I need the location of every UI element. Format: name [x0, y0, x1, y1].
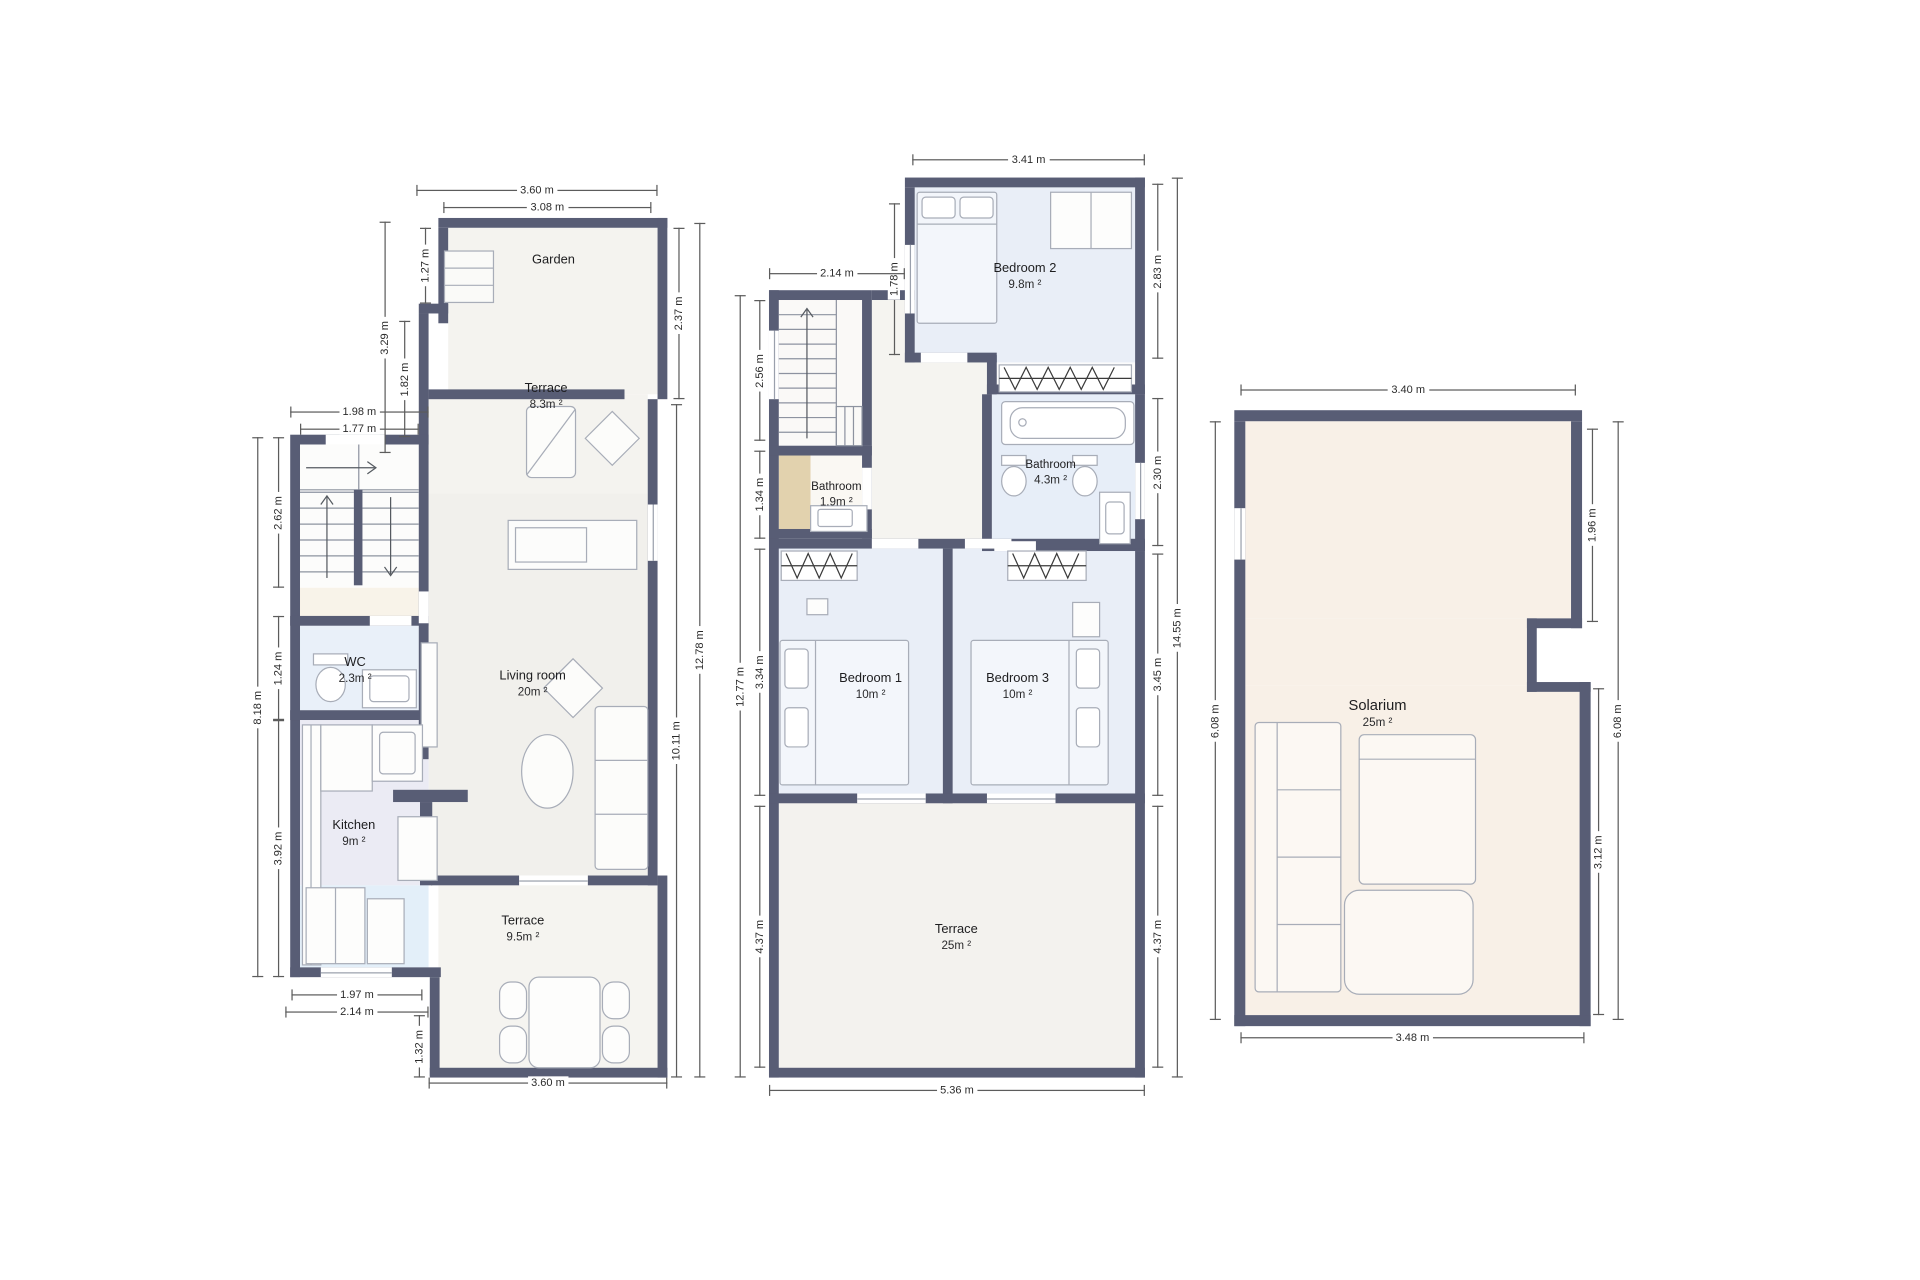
- dim-terrace-right-first: 4.37 m: [1150, 806, 1166, 1068]
- dim-stairs-left-first: 2.56 m: [752, 300, 768, 441]
- dim-stairs-top-first: 2.14 m: [769, 266, 905, 282]
- room-area: 1.9m ²: [820, 495, 853, 510]
- room-area: 10m ²: [856, 688, 886, 703]
- dim-solarium-bottom: 3.48 m: [1240, 1030, 1584, 1046]
- ottoman: [1345, 890, 1474, 994]
- room-name: Bedroom 1: [839, 671, 902, 688]
- room-area: 4.3m ²: [1034, 473, 1067, 488]
- dim-bathroom-right: 2.30 m: [1150, 398, 1166, 546]
- room-name: Garden: [532, 252, 575, 269]
- dim-bottom-step: 1.32 m: [411, 1015, 427, 1077]
- staircase-first: [779, 300, 862, 446]
- room-area: 9.8m ²: [1008, 278, 1041, 293]
- closet-bedroom2: [1051, 192, 1132, 248]
- sofa: [595, 707, 648, 870]
- dim-right-total: 12.78 m: [692, 223, 708, 1078]
- bath-vanity: [1100, 492, 1131, 543]
- floorplan-canvas: Garden Terrace8.3m ² Living room20m ² WC…: [0, 0, 1920, 1280]
- wardrobe-bedroom3: [1008, 551, 1086, 580]
- bathtub: [1002, 402, 1134, 445]
- laundry-appliances: [306, 888, 404, 964]
- room-label-terrace-lower: Terrace9.5m ²: [462, 913, 584, 945]
- room-label-solarium: Solarium25m ²: [1316, 697, 1438, 732]
- dim-left-total-first: 12.77 m: [732, 295, 748, 1077]
- dim-bottom-inner: 2.14 m: [285, 1004, 428, 1020]
- dim-left-total: 8.18 m: [250, 437, 266, 977]
- oval-table: [522, 735, 573, 808]
- room-label-terrace-first: Terrace25m ²: [895, 922, 1017, 954]
- room-label-kitchen: Kitchen9m ²: [293, 818, 415, 850]
- room-name: Living room: [499, 669, 565, 686]
- planters: [444, 251, 493, 302]
- dim-bedroom2-top: 3.41 m: [912, 152, 1145, 168]
- room-name: Terrace: [525, 381, 568, 398]
- room-name: Terrace: [935, 922, 978, 939]
- room-label-bedroom1: Bedroom 110m ²: [809, 671, 931, 703]
- staircase-ground: [300, 444, 419, 585]
- dim-garden-right: 2.37 m: [671, 228, 687, 399]
- lounge-chair: [527, 407, 640, 478]
- dim-garden-left: 1.27 m: [418, 228, 434, 304]
- dim-bedroom2-right: 2.83 m: [1150, 184, 1166, 359]
- room-label-garden: Garden: [492, 252, 614, 269]
- room-label-bedroom3: Bedroom 310m ²: [956, 671, 1078, 703]
- wardrobe-bedroom2: [999, 365, 1131, 392]
- room-name: Solarium: [1349, 697, 1407, 716]
- room-area: 20m ²: [518, 686, 548, 701]
- dim-stairs-height: 2.62 m: [271, 437, 287, 588]
- room-area: 9m ²: [342, 835, 365, 850]
- dim-solarium-right-lower: 3.12 m: [1591, 688, 1607, 1015]
- dining-table: [500, 977, 630, 1068]
- room-name: Kitchen: [332, 818, 375, 835]
- dim-bedroom1-left: 3.34 m: [752, 549, 768, 796]
- room-label-bathroom-small: Bathroom1.9m ²: [775, 480, 897, 511]
- tv-sideboard: [508, 520, 637, 569]
- dim-top-outer: 3.60 m: [416, 182, 657, 198]
- room-area: 25m ²: [1363, 716, 1393, 731]
- dim-bathroom-small-left: 1.34 m: [752, 451, 768, 539]
- room-label-bathroom: Bathroom4.3m ²: [989, 458, 1111, 489]
- sun-lounger: [1359, 735, 1475, 884]
- room-label-wc: WC2.3m ²: [294, 655, 416, 687]
- room-name: Bathroom: [1025, 458, 1075, 473]
- dim-bottom-door: 1.97 m: [291, 987, 422, 1003]
- dim-top-inner: 3.08 m: [443, 200, 651, 216]
- dim-terrace-left-first: 4.37 m: [752, 806, 768, 1068]
- dim-solarium-right-upper: 1.96 m: [1585, 429, 1601, 622]
- wardrobe-bedroom1: [781, 551, 857, 580]
- dim-right-total-first: 14.55 m: [1169, 178, 1185, 1078]
- dim-solarium-right-total: 6.08 m: [1610, 421, 1626, 1020]
- floorplan-screenshot: { "colors": { "wall": "#585d75", "floor_…: [0, 0, 1920, 1280]
- room-area: 10m ²: [1003, 688, 1033, 703]
- dim-right-inner: 10.11 m: [669, 404, 685, 1077]
- dim-terrace-bottom: 3.60 m: [429, 1075, 668, 1091]
- room-label-terrace-upper: Terrace8.3m ²: [485, 381, 607, 413]
- dim-stairs-width-outer: 1.98 m: [290, 404, 428, 420]
- dim-kitchen-height: 3.92 m: [271, 720, 287, 977]
- room-name: Bathroom: [811, 480, 861, 495]
- solarium-sofa: [1255, 722, 1341, 991]
- room-area: 2.3m ²: [339, 672, 372, 687]
- room-area: 8.3m ²: [530, 398, 563, 413]
- room-name: WC: [344, 655, 365, 672]
- room-name: Terrace: [501, 913, 544, 930]
- dim-wc-height: 1.24 m: [271, 616, 287, 720]
- dim-stairs-width-inner: 1.77 m: [300, 421, 419, 437]
- room-label-living-room: Living room20m ²: [471, 669, 593, 701]
- room-name: Bedroom 3: [986, 671, 1049, 688]
- sideboard: [421, 643, 437, 747]
- room-name: Bedroom 2: [993, 261, 1056, 278]
- dim-solarium-top: 3.40 m: [1240, 382, 1576, 398]
- dim-bottom-first: 5.36 m: [769, 1082, 1145, 1098]
- dim-bedroom3-right: 3.45 m: [1150, 553, 1166, 795]
- double-bed-2: [917, 192, 997, 323]
- dim-solarium-left: 6.08 m: [1207, 421, 1223, 1020]
- room-area: 25m ²: [941, 939, 971, 954]
- room-label-bedroom2: Bedroom 29.8m ²: [964, 261, 1086, 293]
- room-area: 9.5m ²: [506, 930, 539, 945]
